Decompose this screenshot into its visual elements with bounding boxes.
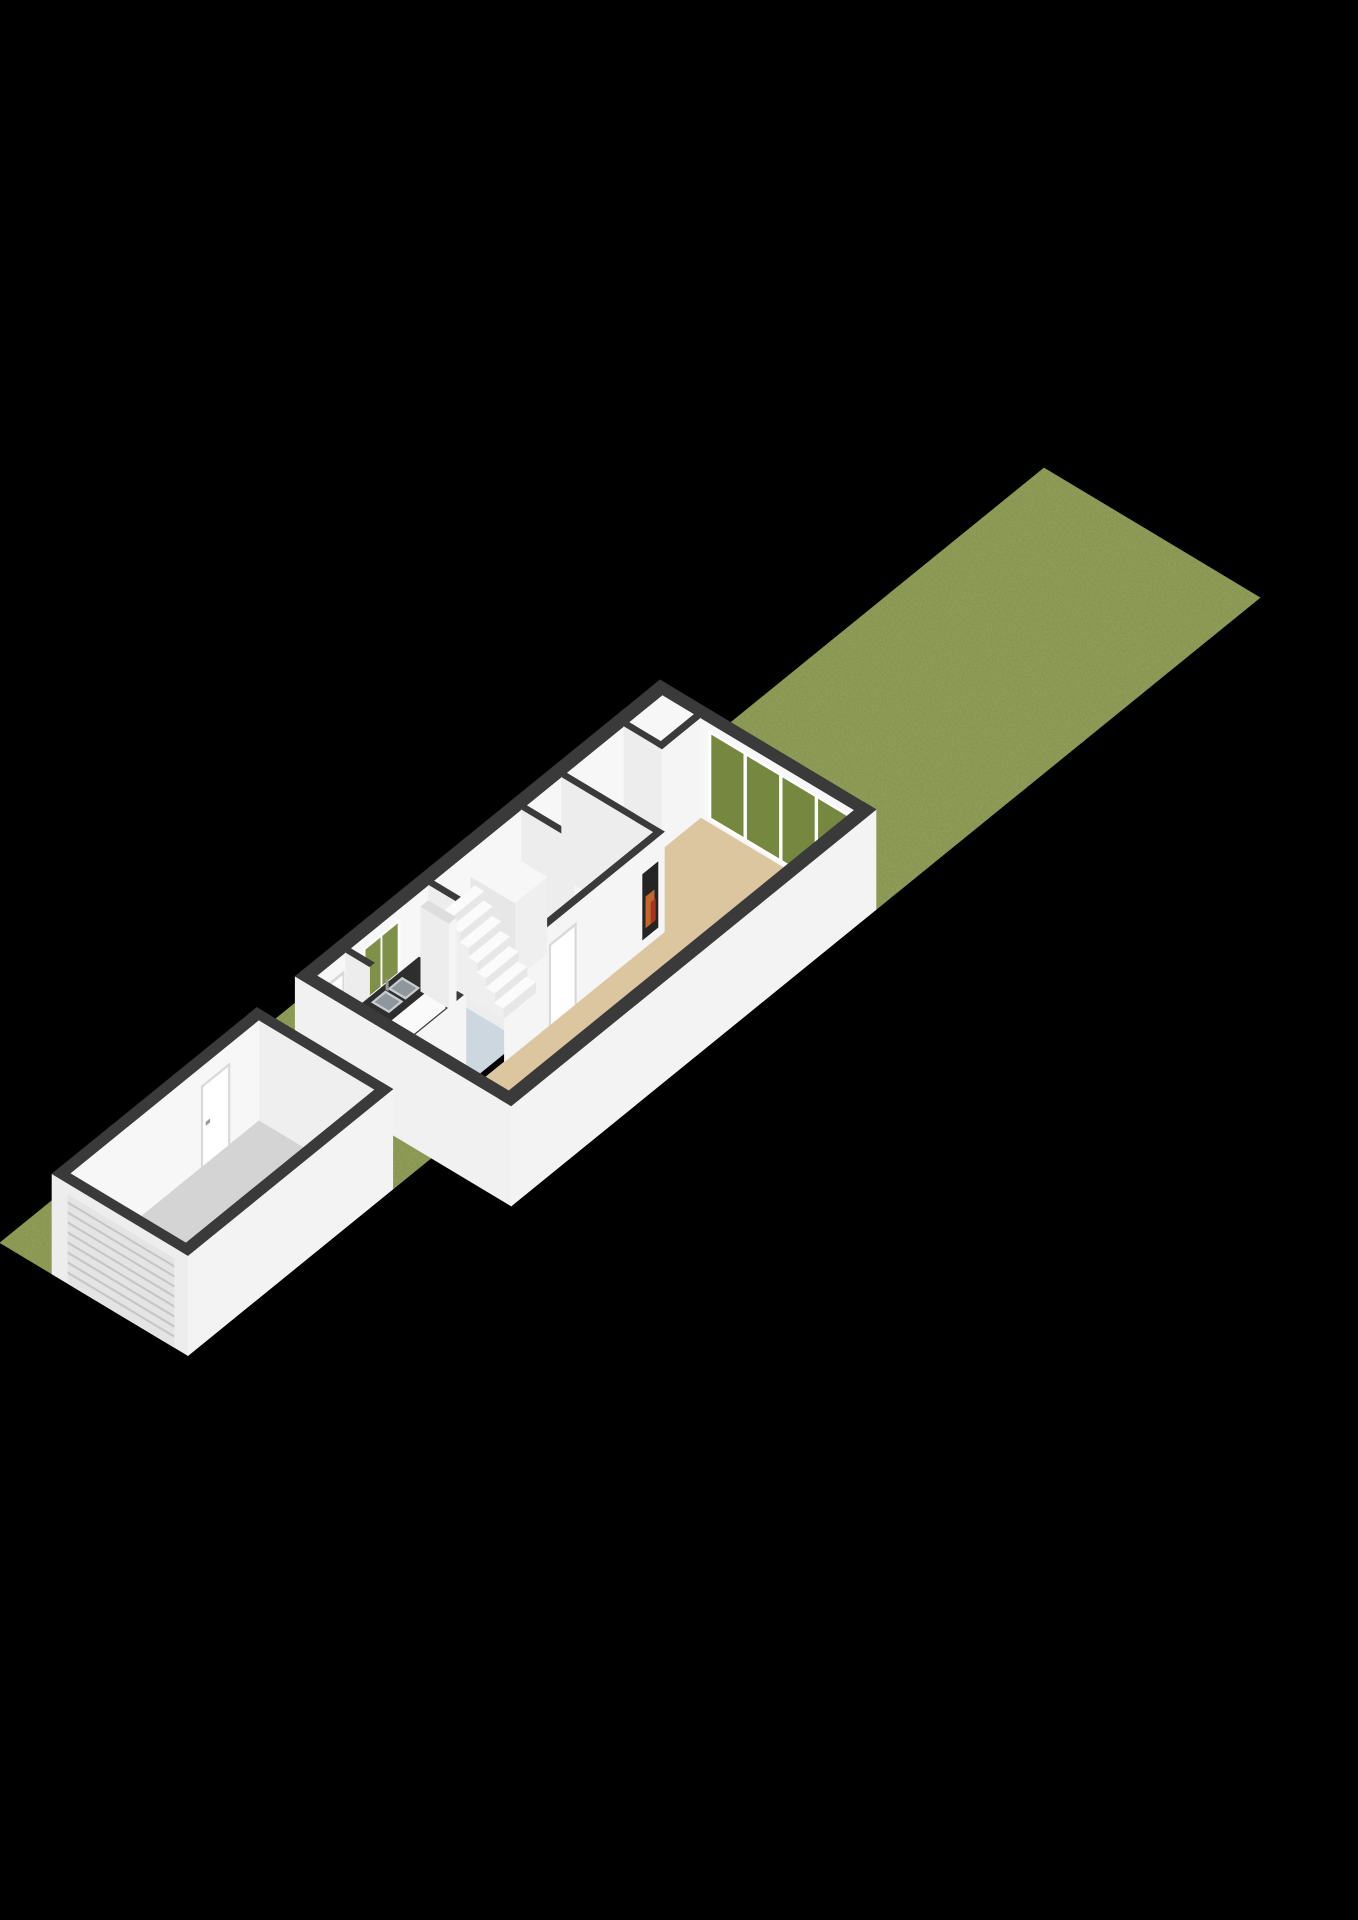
- tall-cabinet-front: [449, 917, 456, 1008]
- tall-cabinet-side: [421, 907, 449, 1009]
- floorplan-3d-render: [0, 0, 1358, 1920]
- floorplan-canvas: [0, 0, 1358, 1920]
- fireplace-red: [651, 899, 655, 924]
- sink-faucet: [386, 979, 388, 991]
